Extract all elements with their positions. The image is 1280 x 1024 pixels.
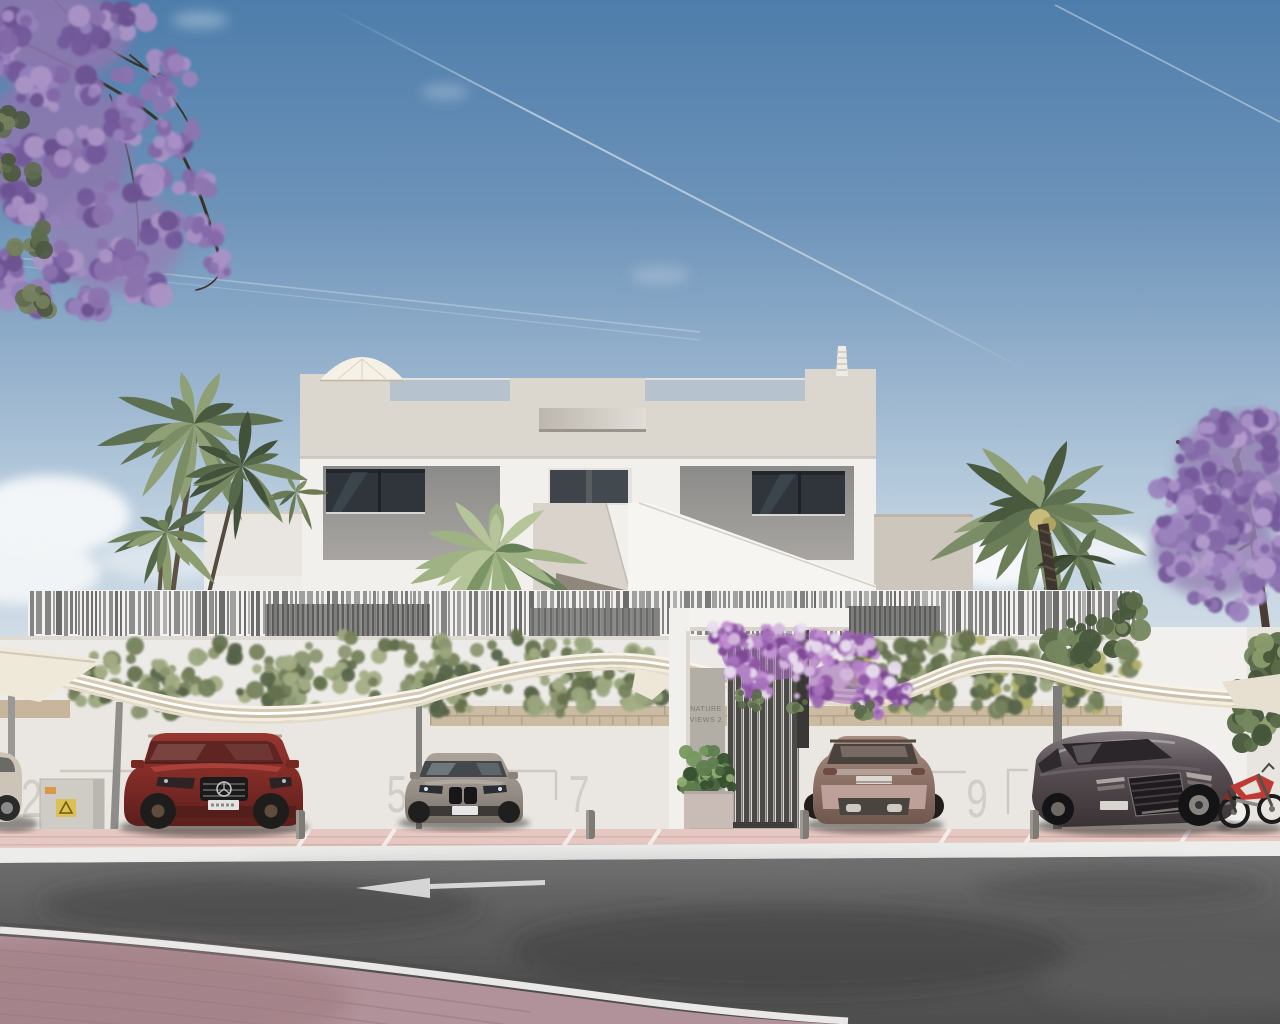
svg-text:5: 5 — [387, 765, 408, 824]
svg-text:NATURE: NATURE — [690, 706, 722, 713]
svg-text:VIEWS 2: VIEWS 2 — [690, 717, 723, 724]
svg-text:9: 9 — [966, 768, 988, 829]
